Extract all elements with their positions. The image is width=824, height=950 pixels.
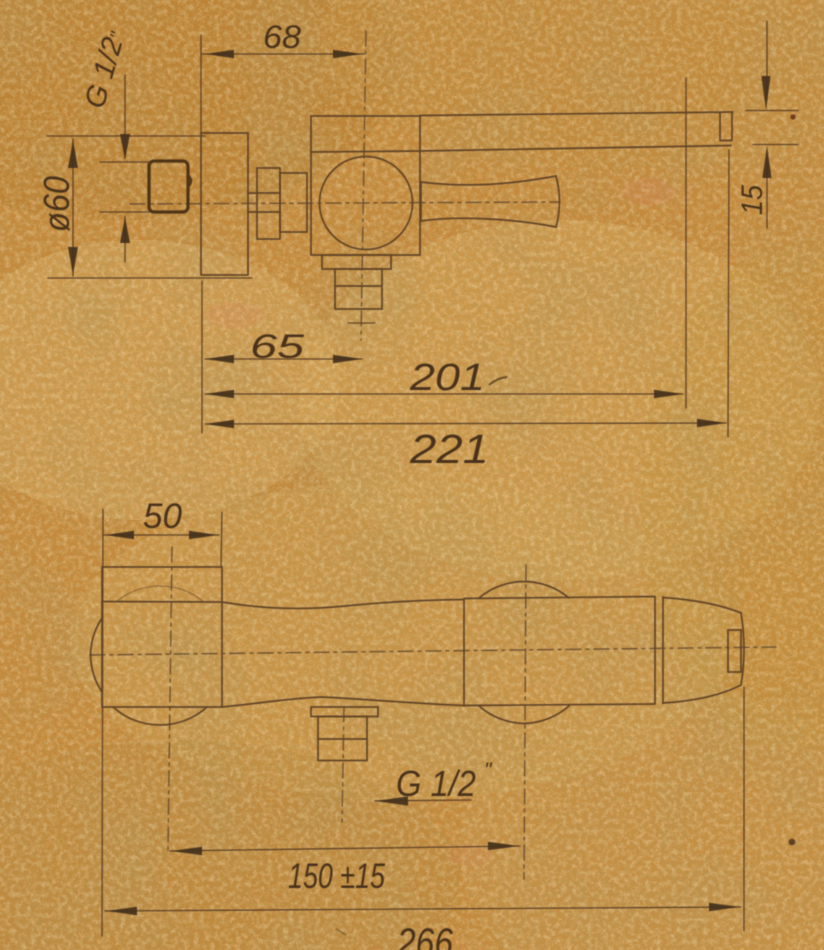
svg-text:G 1/2: G 1/2 — [396, 763, 476, 804]
svg-text:ø60: ø60 — [36, 176, 77, 232]
svg-text:266: 266 — [396, 921, 453, 950]
svg-text:15: 15 — [736, 185, 769, 215]
svg-text:150 ±15: 150 ±15 — [288, 857, 385, 896]
svg-text:50: 50 — [143, 497, 183, 536]
svg-text:201: 201 — [409, 357, 485, 399]
svg-text:68: 68 — [263, 19, 301, 55]
svg-text:65: 65 — [250, 328, 304, 366]
svg-text:221: 221 — [409, 426, 489, 472]
